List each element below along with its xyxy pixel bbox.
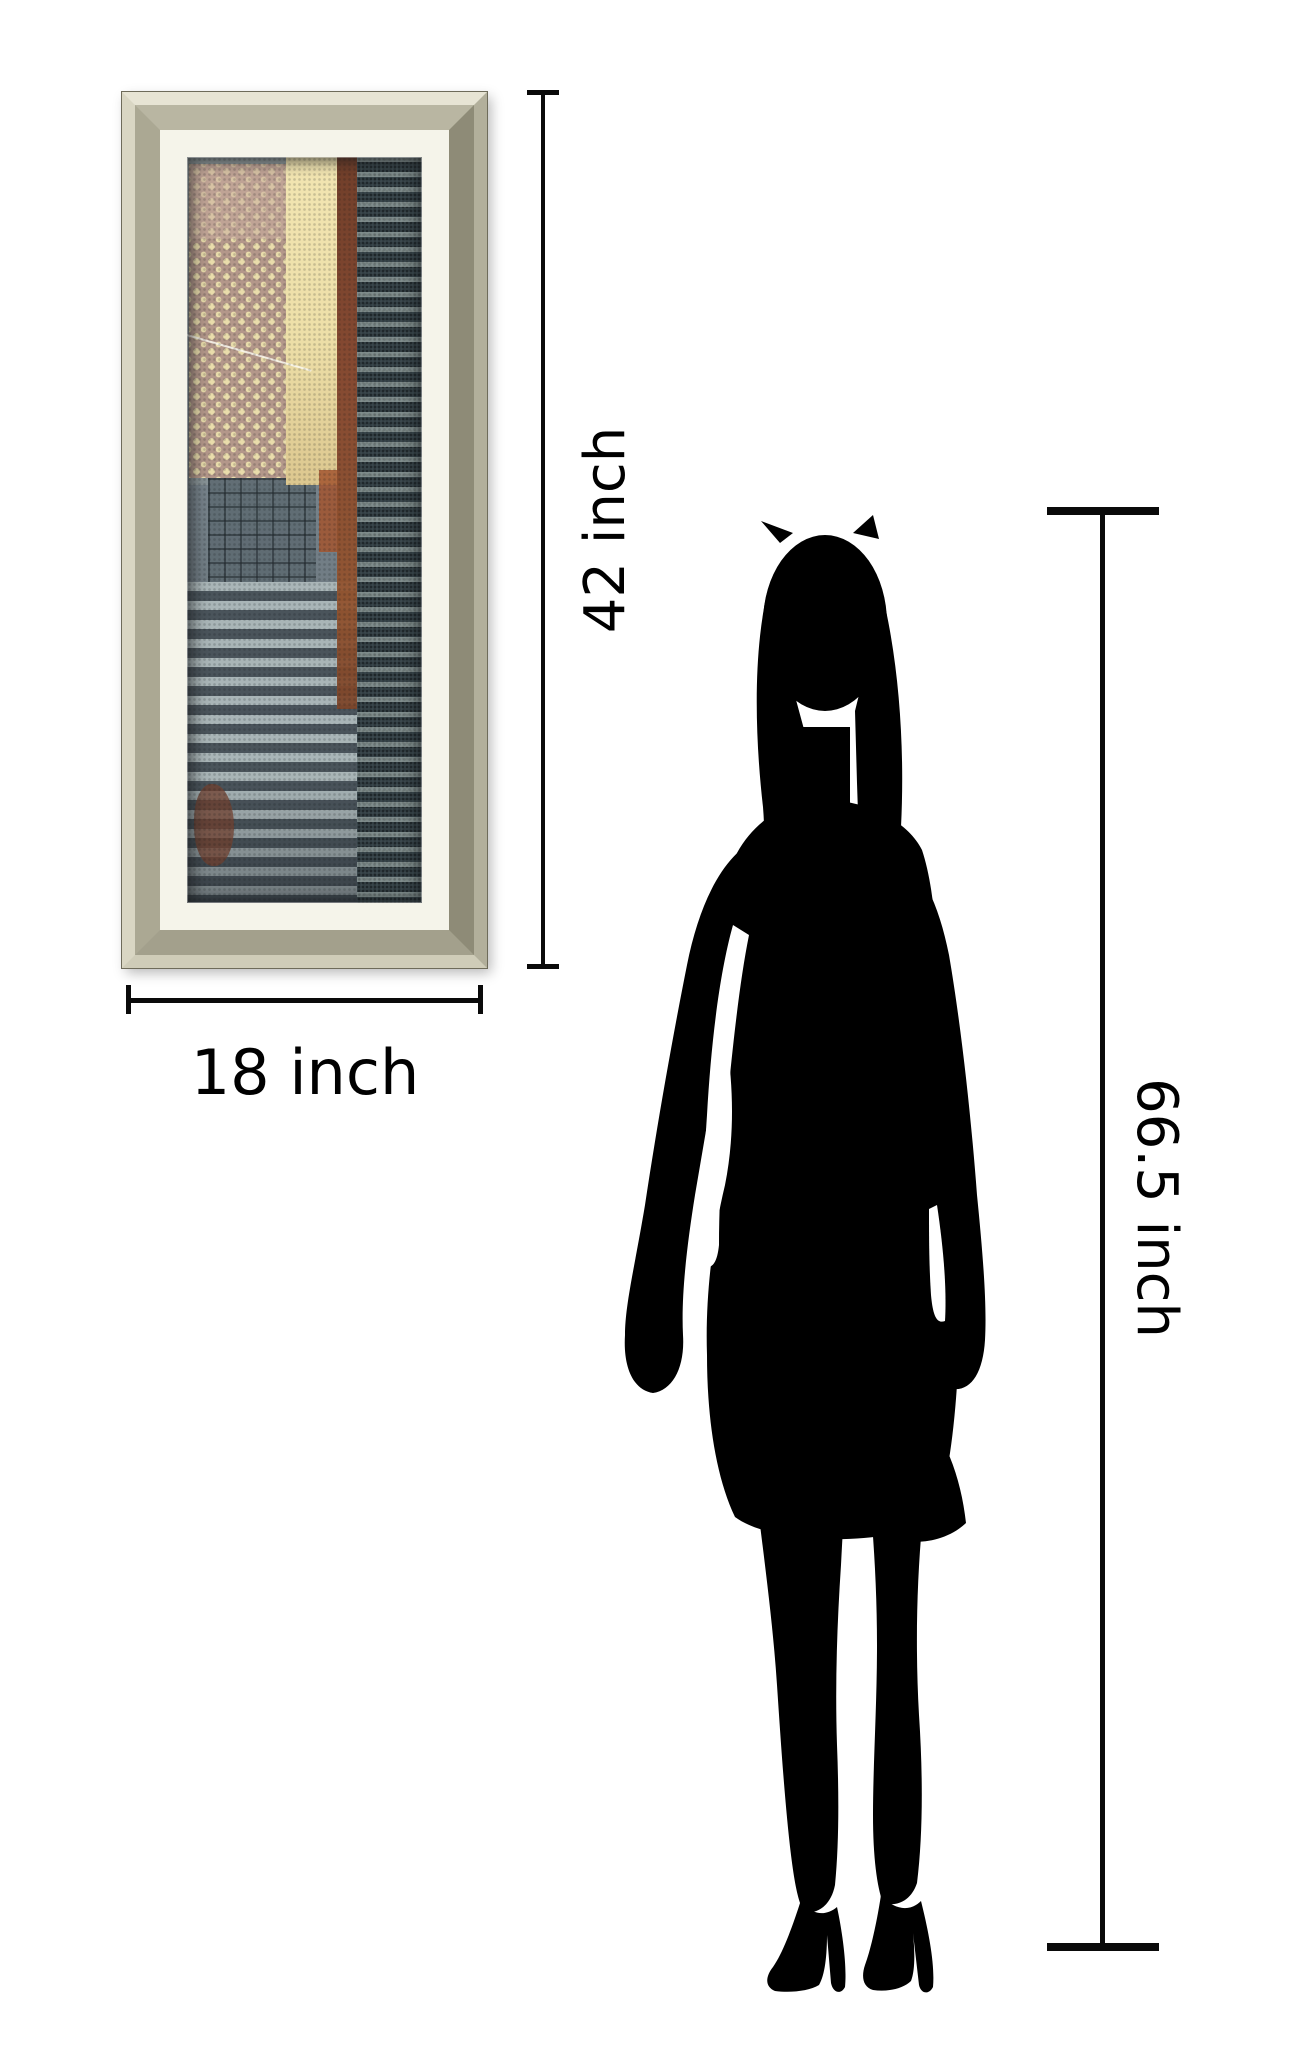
person-height-label: 66.5 inch <box>1128 1078 1184 1338</box>
person-dimension-bottom-tick <box>1047 1943 1159 1951</box>
frame-inner-bevel <box>135 105 474 955</box>
height-dimension-top-tick <box>527 90 559 95</box>
picture-frame <box>122 92 487 968</box>
width-dimension-left-tick <box>126 985 131 1014</box>
height-dimension-bottom-tick <box>527 964 559 969</box>
person-dimension-top-tick <box>1047 507 1159 515</box>
abstract-cityscape-art <box>187 157 422 903</box>
width-dimension-line <box>128 998 483 1003</box>
frame-width-label: 18 inch <box>105 1042 505 1104</box>
woman-silhouette <box>615 505 1015 1995</box>
frame-liner <box>160 130 449 930</box>
art-layer-vignette <box>187 157 422 903</box>
person-dimension-line <box>1100 511 1105 1950</box>
width-dimension-right-tick <box>478 985 483 1014</box>
height-dimension-line <box>541 93 545 967</box>
product-dimension-diagram: 42 inch 18 inch 66.5 inch <box>0 0 1296 2048</box>
